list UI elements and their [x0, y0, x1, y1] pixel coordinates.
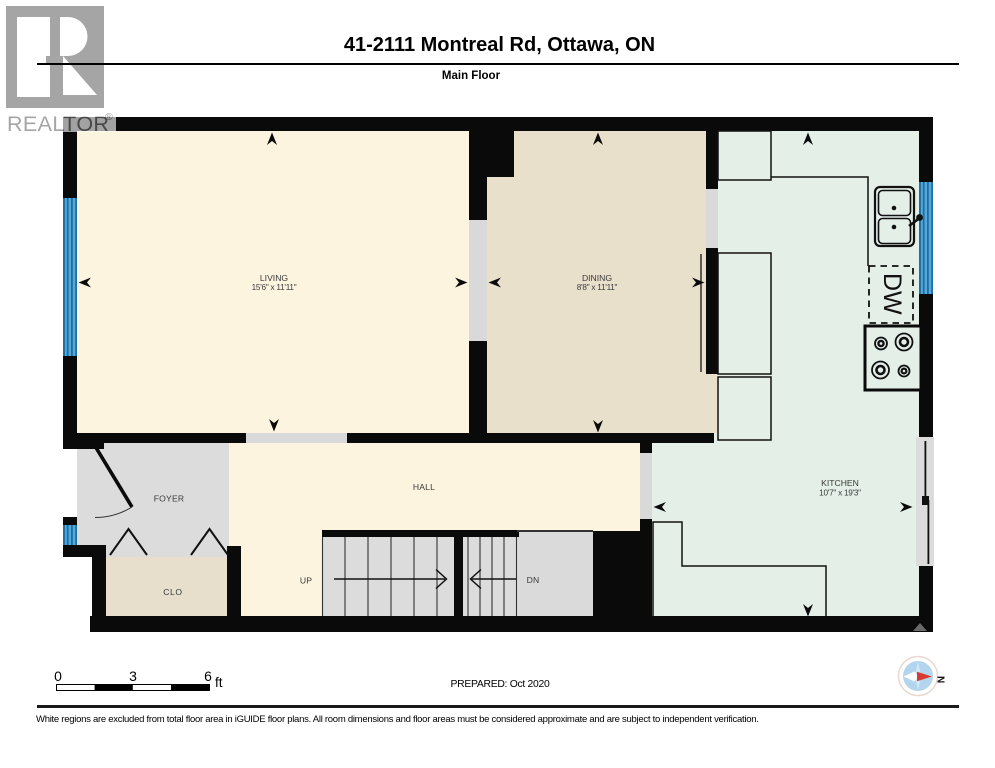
svg-text:REALTOR: REALTOR — [7, 112, 109, 132]
svg-text:KITCHEN: KITCHEN — [821, 478, 859, 488]
svg-text:UP: UP — [300, 576, 312, 586]
svg-text:8'8" x 11'11": 8'8" x 11'11" — [577, 283, 618, 292]
svg-text:10'7" x 19'3": 10'7" x 19'3" — [819, 489, 861, 498]
svg-text:DINING: DINING — [582, 273, 612, 283]
svg-text:HALL: HALL — [413, 482, 435, 492]
svg-text:DN: DN — [527, 575, 540, 585]
svg-text:DW: DW — [878, 273, 906, 315]
svg-text:CLO: CLO — [163, 587, 182, 597]
svg-text:N: N — [935, 676, 946, 683]
svg-text:LIVING: LIVING — [260, 273, 288, 283]
svg-text:®: ® — [105, 111, 113, 123]
svg-text:FOYER: FOYER — [154, 494, 185, 504]
svg-text:15'6" x 11'11": 15'6" x 11'11" — [252, 283, 297, 292]
